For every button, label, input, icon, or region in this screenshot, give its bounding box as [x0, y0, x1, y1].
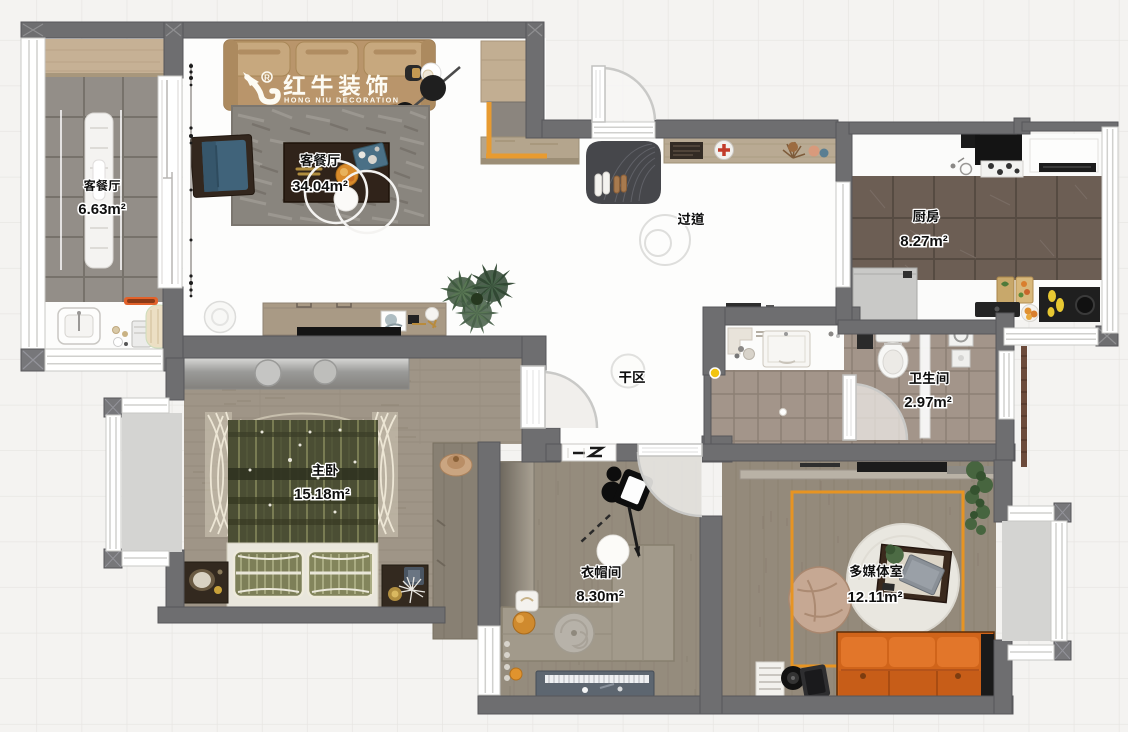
svg-text:8.27m²: 8.27m² [900, 233, 948, 250]
svg-text:R: R [264, 74, 270, 83]
svg-text:2.97m²: 2.97m² [904, 394, 952, 411]
svg-text:6.63m²: 6.63m² [78, 201, 126, 218]
svg-text:8.30m²: 8.30m² [576, 588, 624, 605]
svg-text:15.18m²: 15.18m² [294, 486, 350, 503]
svg-text:HONG NIU DECORATION: HONG NIU DECORATION [284, 96, 400, 105]
svg-text:34.04m²: 34.04m² [292, 178, 348, 195]
svg-text:12.11m²: 12.11m² [847, 589, 902, 606]
